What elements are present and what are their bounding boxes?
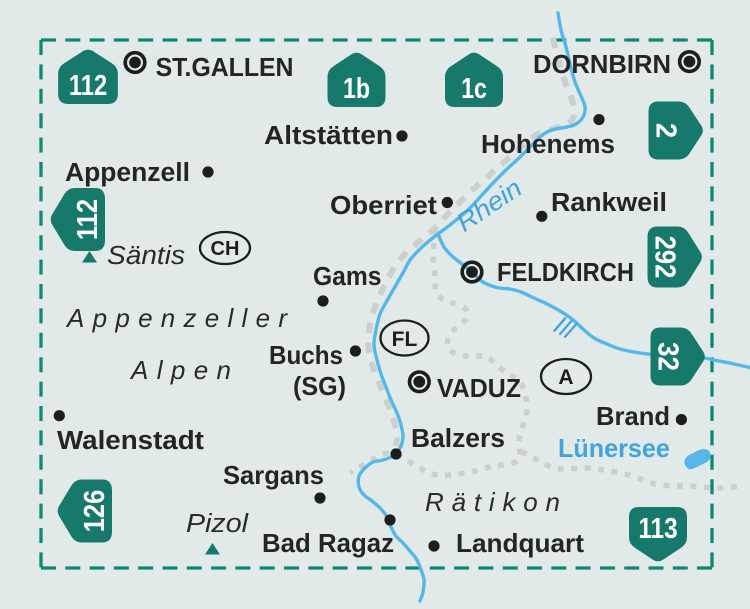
svg-text:32: 32 (652, 342, 685, 371)
svg-text:Appenzell: Appenzell (65, 157, 190, 187)
svg-text:Pizol: Pizol (186, 508, 249, 537)
svg-text:1c: 1c (461, 71, 487, 104)
svg-text:ST.GALLEN: ST.GALLEN (156, 54, 294, 83)
svg-text:112: 112 (69, 69, 107, 102)
svg-text:VADUZ: VADUZ (437, 375, 521, 404)
svg-text:FELDKIRCH: FELDKIRCH (497, 258, 634, 287)
svg-text:292: 292 (649, 236, 682, 279)
svg-text:126: 126 (77, 490, 110, 533)
svg-text:Landquart: Landquart (456, 528, 584, 558)
svg-text:Alpen: Alpen (129, 355, 231, 385)
svg-text:Säntis: Säntis (107, 241, 185, 270)
svg-text:FL: FL (392, 328, 418, 351)
svg-text:DORNBIRN: DORNBIRN (533, 51, 671, 79)
svg-text:Lünersee: Lünersee (558, 435, 670, 463)
svg-text:Rankweil: Rankweil (551, 187, 667, 217)
svg-text:Walenstadt: Walenstadt (57, 426, 204, 455)
svg-text:Bad Ragaz: Bad Ragaz (262, 530, 394, 558)
svg-text:Buchs: Buchs (269, 341, 343, 370)
svg-text:Oberriet: Oberriet (330, 191, 437, 220)
svg-text:Sargans: Sargans (223, 462, 324, 490)
svg-text:Brand: Brand (596, 403, 670, 431)
svg-text:112: 112 (70, 199, 103, 240)
svg-text:2: 2 (650, 123, 683, 138)
svg-text:A: A (558, 366, 573, 389)
svg-text:Hohenems: Hohenems (481, 129, 615, 159)
svg-text:1b: 1b (343, 71, 370, 104)
svg-text:Balzers: Balzers (411, 423, 505, 453)
svg-text:(SG): (SG) (293, 373, 346, 401)
svg-text:Gams: Gams (313, 262, 381, 291)
svg-text:Altstätten: Altstätten (264, 121, 393, 150)
svg-text:CH: CH (211, 238, 240, 260)
svg-text:113: 113 (638, 512, 677, 544)
